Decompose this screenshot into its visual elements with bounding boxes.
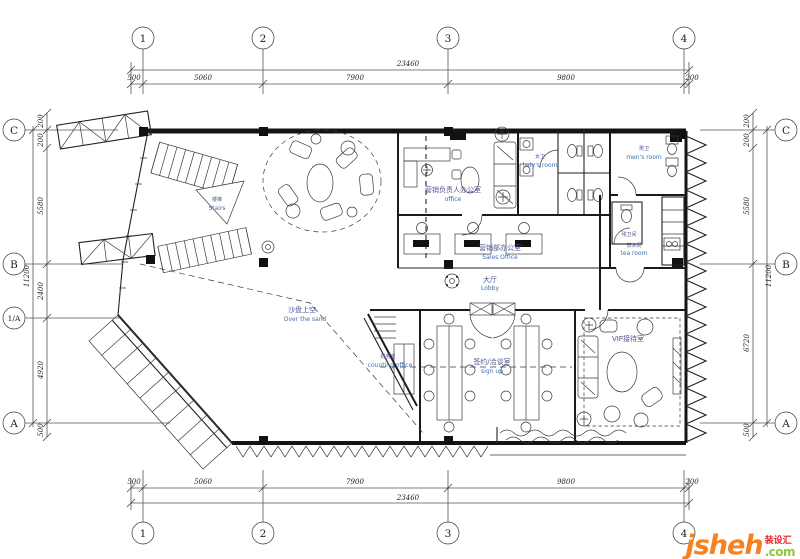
dim-left-seg: 4920 (37, 361, 45, 380)
vip-room-label-zh: VIP接待室 (612, 334, 644, 343)
logo-tld-text: .com (765, 546, 795, 558)
dim-left-seg: 200 (37, 114, 45, 129)
ladies-room-fixtures (520, 138, 603, 202)
entry-steps (89, 315, 232, 469)
interior-walls (364, 131, 686, 443)
stairs-label-en: Stairs (208, 205, 225, 212)
grid-bubble-label: C (10, 125, 18, 137)
dim-right-seg: 6720 (743, 334, 751, 352)
grid-bubble-label: 3 (445, 33, 452, 45)
lobby-features (445, 274, 515, 338)
lobby-label-en: Lobby (481, 285, 500, 292)
tea-room-label-en: tea room (620, 250, 647, 257)
logo-brand-text: jsheh (685, 535, 762, 558)
sales-office-workstations (404, 223, 542, 255)
jsheh-logo: jsheh 装设汇 .com (685, 535, 795, 558)
top-dimension-lines: 23460 500 5060 7900 9800 200 (127, 49, 699, 94)
finance-label-en: counting office (368, 362, 413, 369)
logo-side: 装设汇 .com (765, 537, 795, 558)
tea-room-label-zh: 茶水间 (626, 242, 641, 249)
round-lounge (263, 130, 381, 232)
sales-office-label-zh: 营销部办公室 (479, 243, 521, 252)
floor-plan-drawing: 23460 500 5060 7900 9800 200 1 2 3 4 500… (0, 0, 800, 559)
dim-right-seg: 5580 (743, 197, 751, 215)
grid-bubble-label: 3 (445, 528, 452, 540)
ladies-room-label-en: lady's room (523, 162, 558, 169)
dim-bottom-seg: 500 (127, 478, 141, 486)
dim-right-seg: 500 (743, 423, 751, 437)
dim-left-seg: 2400 (37, 282, 45, 301)
dim-right-total: 11200 (765, 264, 773, 287)
dim-left-seg: 500 (37, 423, 45, 437)
grid-bubble-label: 2 (260, 528, 267, 540)
stairs-label-zh: 楼梯 (212, 196, 222, 203)
director-office-label-zh: 营销负责人办公室 (425, 185, 481, 194)
sand-void-label-zh: 沙盘上空 (288, 305, 316, 314)
sign-room-label-zh: 签约/洽谈室 (473, 357, 510, 366)
right-grid-bubbles: C B A (775, 119, 797, 434)
room-labels: 楼梯 Stairs 营销负责人办公室 office 营销部办公室 Sales O… (208, 146, 661, 375)
grid-bubble-label: 1 (140, 528, 147, 540)
dim-bottom-seg: 5060 (194, 478, 212, 486)
bottom-dimension-lines: 500 5060 7900 9800 200 23460 (127, 470, 699, 522)
grid-bubble-label: 4 (681, 33, 688, 45)
sand-void-outline (140, 264, 424, 434)
dim-bottom-seg: 7900 (346, 478, 364, 486)
tea-room-fixtures (662, 197, 684, 265)
dim-right-seg: 200 (743, 133, 751, 148)
accessible-wc-label-zh: 残卫间 (621, 231, 636, 238)
grid-bubble-label: B (782, 259, 790, 271)
grid-bubble-label: A (781, 418, 790, 430)
dim-left-seg: 5580 (37, 197, 45, 215)
lobby-label-zh: 大厅 (483, 275, 497, 284)
grid-bubble-label: 1 (140, 33, 147, 45)
dim-left-seg: 200 (37, 133, 45, 148)
mens-room-label-zh: 男卫 (639, 146, 649, 152)
dim-top-seg: 9800 (557, 74, 575, 82)
right-dimension-lines: 200 200 5580 6720 500 11200 (700, 109, 775, 441)
dim-top-seg: 5060 (194, 74, 212, 82)
mens-room-fixtures (666, 136, 678, 177)
canopy-truss-lower (79, 234, 155, 265)
grid-bubble-label: C (782, 125, 790, 137)
dim-top-seg: 7900 (346, 74, 364, 82)
grid-bubble-label: B (10, 259, 18, 271)
sign-room-tables (380, 314, 572, 432)
dim-top-seg: 500 (127, 74, 141, 82)
dim-bottom-seg: 9800 (557, 478, 575, 486)
right-louver-fins (686, 136, 706, 442)
dim-top-seg: 200 (684, 74, 699, 82)
sales-office-label-en: Sales Office (482, 254, 518, 261)
grid-bubble-label: A (9, 418, 18, 430)
dim-bottom-seg: 200 (684, 478, 699, 486)
dim-top-total: 23460 (396, 60, 420, 68)
left-grid-bubbles: C B 1/A A (3, 119, 25, 434)
top-grid-bubbles: 1 2 3 4 (132, 27, 695, 49)
grid-bubble-label: 1/A (8, 314, 21, 323)
dim-right-seg: 200 (743, 114, 751, 129)
dim-bottom-total: 23460 (396, 494, 420, 502)
mens-room-label-en: men's room (626, 154, 662, 161)
bottom-grid-bubbles: 1 2 3 4 (132, 522, 695, 544)
floor-plan-page: 23460 500 5060 7900 9800 200 1 2 3 4 500… (0, 0, 800, 559)
bottom-edge-fringe (236, 446, 488, 457)
grid-bubble-label: 2 (260, 33, 267, 45)
sand-void-label-en: Over the sand (284, 316, 327, 323)
sign-room-label-en: sign up (481, 368, 503, 375)
director-office-label-en: office (445, 196, 462, 203)
finance-label-zh: 财务室 (380, 353, 395, 360)
ladies-room-label-zh: 女卫 (535, 153, 545, 160)
